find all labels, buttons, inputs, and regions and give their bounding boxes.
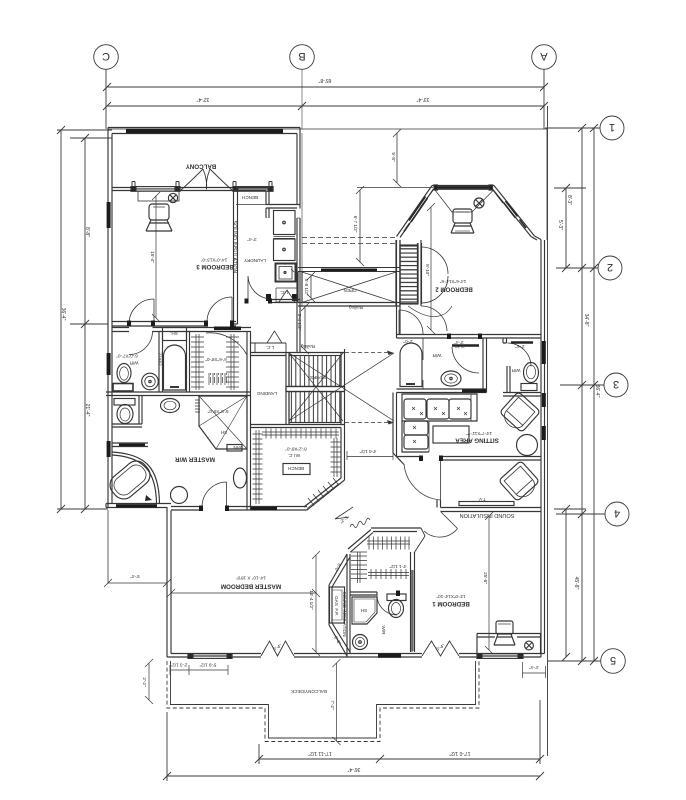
svg-text:BENCH: BENCH bbox=[242, 195, 258, 200]
svg-text:A: A bbox=[540, 50, 548, 62]
svg-text:BALCONY/DECK: BALCONY/DECK bbox=[290, 689, 327, 694]
svg-text:BEDROOM 1: BEDROOM 1 bbox=[432, 600, 470, 607]
svg-text:3'-4": 3'-4" bbox=[454, 340, 464, 345]
svg-text:14'-10" X 18'0": 14'-10" X 18'0" bbox=[236, 576, 266, 581]
svg-text:W/R: W/R bbox=[129, 361, 139, 366]
svg-text:W.I.C.: W.I.C. bbox=[288, 453, 301, 458]
svg-text:OPEN: OPEN bbox=[343, 288, 356, 293]
svg-text:F.P.: F.P. bbox=[334, 608, 339, 615]
svg-text:Railing: Railing bbox=[301, 344, 315, 349]
svg-text:SITTING AREA: SITTING AREA bbox=[455, 437, 499, 444]
svg-text:17'-0 1/2": 17'-0 1/2" bbox=[449, 750, 470, 756]
svg-text:3: 3 bbox=[613, 378, 619, 390]
svg-text:BENCH: BENCH bbox=[288, 466, 304, 471]
svg-text:SH.: SH. bbox=[170, 331, 178, 336]
svg-text:14'-6"X14'-6": 14'-6"X14'-6" bbox=[439, 279, 466, 284]
svg-text:SH: SH bbox=[221, 430, 227, 435]
svg-text:4: 4 bbox=[614, 507, 620, 519]
svg-text:36'-4": 36'-4" bbox=[60, 308, 66, 321]
svg-text:MASTER BEDROOM: MASTER BEDROOM bbox=[221, 583, 281, 590]
svg-text:17'-11 1/2": 17'-11 1/2" bbox=[308, 750, 332, 756]
svg-text:5'-4": 5'-4" bbox=[130, 574, 140, 579]
svg-text:4'-1 1/2": 4'-1 1/2" bbox=[389, 564, 406, 569]
svg-text:6'-0"X7'-0": 6'-0"X7'-0" bbox=[116, 354, 138, 359]
svg-text:6'-6"X8'-0": 6'-6"X8'-0" bbox=[205, 357, 227, 362]
svg-text:22X62: 22X62 bbox=[158, 352, 163, 366]
svg-text:4'-0 1/2": 4'-0 1/2" bbox=[359, 449, 376, 454]
svg-text:36'-4": 36'-4" bbox=[347, 766, 360, 772]
svg-text:BEDROOM 2: BEDROOM 2 bbox=[435, 286, 473, 293]
svg-text:8'-8": 8'-8" bbox=[84, 227, 90, 237]
svg-text:33'-4": 33'-4" bbox=[416, 96, 429, 102]
svg-text:6'-7 1/2": 6'-7 1/2" bbox=[353, 216, 358, 233]
svg-text:5'-8 1/2": 5'-8 1/2" bbox=[304, 279, 309, 296]
svg-text:SH: SH bbox=[361, 608, 367, 613]
svg-text:SOUND INSULATION: SOUND INSULATION bbox=[342, 591, 347, 636]
svg-text:W/R: W/R bbox=[381, 626, 386, 636]
svg-text:2'-2": 2'-2" bbox=[142, 677, 147, 687]
svg-text:STAIRS: STAIRS bbox=[310, 375, 326, 380]
svg-text:W/R: W/R bbox=[432, 353, 442, 358]
svg-text:21'-4": 21'-4" bbox=[84, 404, 90, 417]
svg-text:T.V.: T.V. bbox=[478, 497, 486, 502]
svg-text:LANDING: LANDING bbox=[256, 391, 277, 396]
svg-text:8'-3": 8'-3" bbox=[566, 195, 572, 205]
svg-text:MASTER W/R: MASTER W/R bbox=[175, 456, 215, 463]
svg-text:LAUNDRY: LAUNDRY bbox=[244, 258, 266, 263]
svg-text:36'-4": 36'-4" bbox=[594, 385, 600, 398]
svg-text:5'.0"X5'.0": 5'.0"X5'.0" bbox=[207, 409, 228, 414]
svg-text:25'-8": 25'-8" bbox=[483, 572, 488, 584]
svg-text:2: 2 bbox=[607, 261, 613, 273]
svg-text:8'-10": 8'-10" bbox=[425, 264, 430, 276]
svg-text:L.C.: L.C. bbox=[280, 290, 288, 295]
svg-text:5'-3": 5'-3" bbox=[557, 220, 563, 230]
svg-text:3'-4": 3'-4" bbox=[247, 237, 257, 242]
svg-text:W/R: W/R bbox=[511, 368, 521, 373]
svg-text:2'-0": 2'-0" bbox=[403, 339, 413, 344]
svg-text:B: B bbox=[298, 50, 305, 62]
svg-text:L.C.: L.C. bbox=[266, 345, 274, 350]
svg-text:GAS: GAS bbox=[334, 596, 339, 606]
svg-text:15'-4": 15'-4" bbox=[150, 251, 155, 263]
svg-text:34'-8": 34'-8" bbox=[583, 314, 589, 327]
svg-text:16'-4 1/2": 16'-4 1/2" bbox=[309, 590, 314, 610]
svg-text:5'-9 1/2": 5'-9 1/2" bbox=[199, 663, 216, 668]
svg-text:8'-2"X8'-0": 8'-2"X8'-0" bbox=[285, 447, 307, 452]
svg-text:65'-8": 65'-8" bbox=[318, 77, 331, 83]
svg-text:SOUND INSULATION: SOUND INSULATION bbox=[460, 512, 515, 518]
svg-text:Railing: Railing bbox=[349, 305, 363, 310]
svg-text:SOUND INSULATION: SOUND INSULATION bbox=[231, 221, 237, 274]
svg-text:BALCONY: BALCONY bbox=[185, 163, 216, 170]
svg-text:5'-4 1/2": 5'-4 1/2" bbox=[297, 314, 302, 331]
svg-text:BEDROOM 3: BEDROOM 3 bbox=[196, 263, 234, 270]
svg-text:1: 1 bbox=[609, 121, 615, 133]
svg-text:5'-8": 5'-8" bbox=[391, 152, 396, 162]
svg-text:C: C bbox=[102, 50, 110, 62]
svg-text:45'-8": 45'-8" bbox=[573, 577, 579, 590]
svg-text:14'-7"X11'-7": 14'-7"X11'-7" bbox=[466, 431, 492, 436]
svg-text:5: 5 bbox=[610, 654, 616, 666]
svg-text:2'-6": 2'-6" bbox=[515, 344, 525, 349]
svg-text:32'-4": 32'-4" bbox=[196, 96, 209, 102]
svg-text:13'-0"X14'-10": 13'-0"X14'-10" bbox=[436, 594, 465, 599]
svg-text:2'-3 1/2": 2'-3 1/2" bbox=[170, 663, 187, 668]
svg-text:14'-0"X13'-0": 14'-0"X13'-0" bbox=[200, 258, 227, 263]
svg-text:7'-2": 7'-2" bbox=[330, 700, 335, 710]
svg-text:VAN: VAN bbox=[233, 445, 242, 450]
svg-text:2'-4": 2'-4" bbox=[529, 665, 539, 670]
